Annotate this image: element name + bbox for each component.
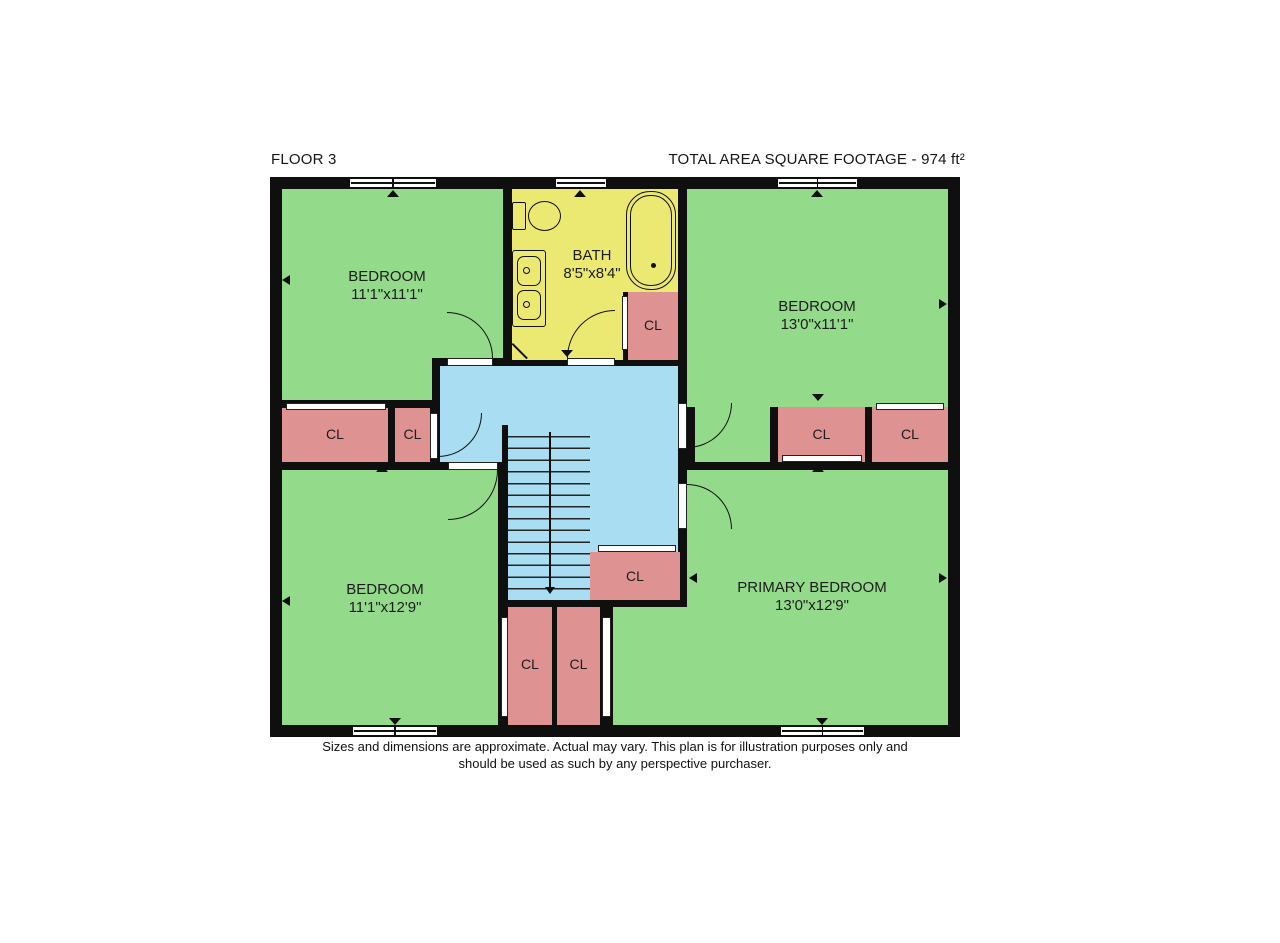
stair-railing [549,432,551,588]
door-bedroom-bottom-left-panel [448,462,498,470]
marker-closet-right-a-bottom [812,465,824,472]
hallway-right [590,425,678,552]
marker-right-wall-bottom [939,573,947,583]
room-name: BEDROOM [295,581,475,599]
window-top-right [777,178,858,188]
stair-down-arrow [545,587,555,594]
room-dims: 11'1"x12'9" [295,599,475,617]
marker-closet-left-bottom [376,465,388,472]
floor-label: FLOOR 3 [271,151,337,168]
room-dims: 8'5"x8'4" [522,265,662,283]
closet-label: CL [557,655,600,673]
door-bedroom-top-right-panel [678,403,687,449]
faucet-bottom-icon [523,301,530,308]
closet-label: CL [872,425,948,443]
marker-left-wall-top [282,275,290,285]
closet-label: CL [628,316,678,334]
bedroom-top-right-label: BEDROOM 13'0"x11'1" [707,298,927,334]
room-name: BEDROOM [707,298,927,316]
marker-left-wall-bottom [282,596,290,606]
disclaimer-line-2: should be used as such by any perspectiv… [270,755,960,772]
closet-label: CL [778,425,865,443]
area-label: TOTAL AREA SQUARE FOOTAGE - 974 ft² [650,151,965,168]
marker-window-top-right [811,190,823,197]
room-name: BATH [522,247,662,265]
disclaimer-line-1: Sizes and dimensions are approximate. Ac… [270,738,960,755]
door-closet-left-small-panel [430,413,438,459]
room-dims: 13'0"x11'1" [707,316,927,334]
closet-label: CL [282,425,388,443]
room-name: BEDROOM [297,268,477,286]
toilet-bowl-icon [528,201,561,231]
sliding-door-closet-left-large [286,403,386,410]
marker-bath-door [561,350,573,357]
marker-window-top-left [387,190,399,197]
window-top-bath [555,178,607,188]
room-dims: 11'1"x11'1" [297,286,477,304]
closet-label: CL [590,567,680,585]
room-dims: 13'0"x12'9" [702,597,922,615]
window-top-left [349,178,437,188]
door-closet-bottom-right-panel [602,617,611,717]
sliding-door-closet-right-a [782,455,862,462]
sliding-door-closet-right-b [876,403,944,410]
window-bottom-right [780,726,865,736]
toilet-tank-icon [512,202,526,230]
closet-label: CL [395,425,430,443]
window-bottom-left [352,726,438,736]
marker-closet-right-a-top [812,394,824,401]
marker-right-wall-top [939,299,947,309]
door-primary-bedroom-panel [678,483,687,529]
door-bedroom-top-left-panel [447,358,493,366]
primary-bedroom-label: PRIMARY BEDROOM 13'0"x12'9" [702,579,922,615]
door-closet-bottom-left-panel [501,617,508,717]
bath-label: BATH 8'5"x8'4" [522,247,662,283]
bedroom-top-left-label: BEDROOM 11'1"x11'1" [297,268,477,304]
marker-window-bottom-left [389,718,401,725]
sliding-door-closet-hall [598,545,676,552]
marker-stair-wall [499,576,507,586]
room-name: PRIMARY BEDROOM [702,579,922,597]
disclaimer: Sizes and dimensions are approximate. Ac… [270,738,960,772]
bedroom-bottom-left-label: BEDROOM 11'1"x12'9" [295,581,475,617]
closet-label: CL [508,655,552,673]
room-primary-bedroom-lower [613,607,687,725]
door-bath-panel [567,358,615,366]
marker-window-top-bath [574,190,586,197]
marker-closet-hall-right [689,573,697,583]
marker-window-bottom-right [816,718,828,725]
floor-plan: BEDROOM 11'1"x11'1" BATH 8'5"x8'4" BEDRO… [270,177,960,737]
room-bedroom-top-left-lower [282,358,432,400]
